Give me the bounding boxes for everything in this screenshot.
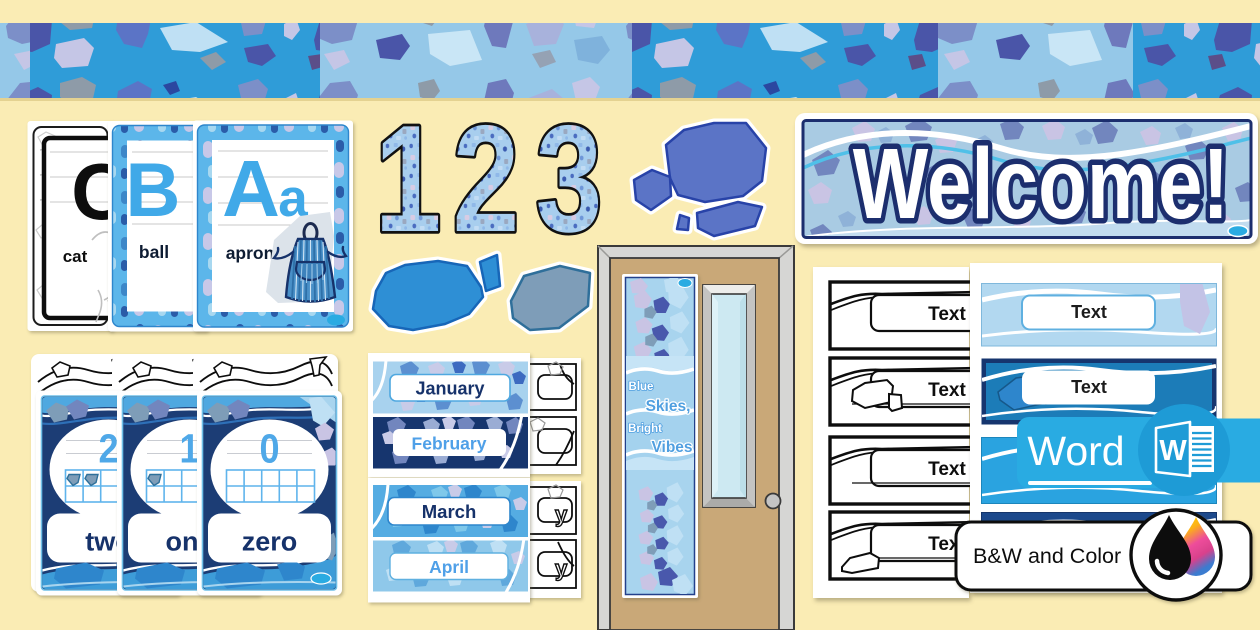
svg-text:A: A [222,144,280,233]
svg-text:April: April [429,557,469,577]
svg-text:Bright: Bright [628,423,662,435]
svg-text:3: 3 [536,95,603,265]
svg-text:Welcome!: Welcome! [853,129,1229,241]
svg-text:ball: ball [139,242,169,262]
svg-text:0: 0 [259,426,279,472]
svg-text:March: March [422,501,477,522]
svg-text:February: February [412,434,487,454]
svg-text:January: January [415,379,484,399]
svg-text:Text: Text [928,380,966,401]
svg-text:y: y [555,502,568,527]
svg-text:1: 1 [375,95,442,265]
svg-text:Text: Text [928,459,966,480]
svg-text:zero: zero [242,527,298,557]
svg-text:cat: cat [63,247,88,266]
svg-text:W: W [1159,435,1187,467]
svg-text:B: B [126,148,181,233]
svg-text:B&W and Color: B&W and Color [973,544,1121,568]
svg-text:Text: Text [1071,377,1107,397]
svg-text:Blue: Blue [629,381,654,393]
svg-text:Text: Text [928,304,966,325]
svg-text:2: 2 [453,95,520,265]
svg-text:1: 1 [179,426,199,472]
svg-text:Skies,: Skies, [646,398,691,415]
svg-text:y: y [555,556,568,581]
svg-text:Text: Text [1071,302,1107,322]
svg-text:apron: apron [226,243,275,263]
svg-text:Word: Word [1027,428,1124,474]
svg-text:Vibes: Vibes [651,439,692,456]
svg-text:2: 2 [98,426,118,472]
